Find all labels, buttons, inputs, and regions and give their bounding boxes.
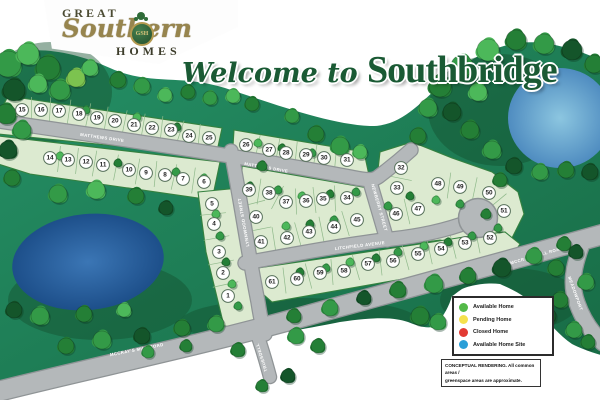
lot-marker[interactable]: 11 [97, 159, 110, 172]
lot-number: 18 [75, 111, 83, 118]
lot-marker[interactable]: 31 [341, 154, 354, 167]
lot-marker[interactable]: 6 [198, 176, 211, 189]
lot-marker[interactable]: 16 [35, 104, 48, 117]
lot-marker[interactable]: 13 [62, 154, 75, 167]
legend-status-dot [459, 303, 468, 312]
lot-number: 2 [221, 270, 225, 277]
lot-number: 56 [389, 258, 397, 265]
lot-number: 31 [343, 157, 351, 164]
lot-number: 38 [265, 190, 273, 197]
map-legend: Available HomePending HomeClosed HomeAva… [452, 296, 554, 356]
lot-marker[interactable]: 33 [391, 182, 404, 195]
lot-number: 25 [205, 135, 213, 142]
lot-number: 32 [397, 165, 405, 172]
lot-number: 8 [163, 172, 167, 179]
lot-marker[interactable]: 34 [341, 192, 354, 205]
lot-marker[interactable]: 28 [280, 147, 293, 160]
lot-number: 23 [167, 127, 175, 134]
lot-number: 40 [252, 214, 260, 221]
lot-number: 26 [242, 142, 250, 149]
lot-marker[interactable]: 18 [73, 108, 86, 121]
lot-number: 3 [217, 249, 221, 256]
legend-status-dot [459, 328, 468, 337]
legend-item: Available Home Site [459, 340, 547, 349]
lot-marker[interactable]: 37 [280, 196, 293, 209]
lot-number: 42 [283, 235, 291, 242]
page-title: Welcome to Southbridge [182, 48, 557, 92]
lot-number: 9 [144, 170, 148, 177]
lot-number: 41 [257, 239, 265, 246]
lot-number: 58 [340, 268, 348, 275]
lot-number: 11 [100, 162, 107, 169]
lot-marker[interactable]: 50 [483, 187, 496, 200]
lot-marker[interactable]: 57 [362, 258, 375, 271]
lot-number: 27 [265, 147, 273, 154]
lot-marker[interactable]: 38 [263, 187, 276, 200]
lot-marker[interactable]: 22 [146, 122, 159, 135]
lot-marker[interactable]: 42 [281, 232, 294, 245]
lot-number: 1 [226, 293, 230, 300]
lot-number: 4 [212, 221, 216, 228]
lot-number: 10 [125, 167, 133, 174]
lot-marker[interactable]: 46 [390, 208, 403, 221]
legend-status-dot [459, 315, 468, 324]
lot-number: 59 [316, 270, 324, 277]
lot-number: 53 [461, 240, 469, 247]
gsh-monogram-medallion: GSH [130, 22, 154, 46]
site-plan-page: MATTHEWS DRIVEMATTHEWS DRIVENEWBERRY STR… [0, 0, 600, 400]
lot-number: 36 [302, 198, 310, 205]
lot-number: 15 [18, 107, 26, 114]
lot-number: 45 [353, 217, 361, 224]
logo-text-homes: HOMES [116, 44, 181, 59]
lot-number: 46 [392, 211, 400, 218]
lot-marker[interactable]: 56 [387, 255, 400, 268]
lot-marker[interactable]: 35 [317, 193, 330, 206]
lot-marker[interactable]: 25 [203, 132, 216, 145]
note-line-2: greenspace areas are approximate. [445, 377, 537, 384]
lot-marker[interactable]: 12 [80, 156, 93, 169]
lot-number: 33 [393, 185, 401, 192]
lot-number: 54 [437, 246, 445, 253]
lot-number: 39 [245, 187, 253, 194]
lot-marker[interactable]: 51 [498, 205, 511, 218]
lot-marker[interactable]: 27 [263, 144, 276, 157]
lot-marker[interactable]: 9 [140, 167, 153, 180]
lot-marker[interactable]: 17 [53, 105, 66, 118]
lot-marker[interactable]: 43 [303, 226, 316, 239]
lot-number: 43 [305, 229, 313, 236]
legend-status-label: Available Home [473, 304, 514, 310]
lot-marker[interactable]: 19 [91, 112, 104, 125]
lot-marker[interactable]: 7 [177, 173, 190, 186]
lot-marker[interactable]: 40 [250, 211, 263, 224]
lot-marker[interactable]: 54 [435, 243, 448, 256]
lot-number: 14 [46, 155, 54, 162]
lot-marker[interactable]: 1 [222, 290, 235, 303]
lot-marker[interactable]: 45 [351, 214, 364, 227]
lot-number: 30 [320, 155, 328, 162]
lot-number: 20 [111, 118, 119, 125]
lot-number: 49 [456, 184, 464, 191]
lot-number: 6 [202, 179, 206, 186]
title-welcome: Welcome to [182, 58, 367, 89]
lot-marker[interactable]: 29 [300, 149, 313, 162]
lot-marker[interactable]: 15 [16, 104, 29, 117]
lot-number: 37 [282, 199, 290, 206]
lot-marker[interactable]: 32 [395, 162, 408, 175]
lot-marker[interactable]: 41 [255, 236, 268, 249]
legend-item: Pending Home [459, 315, 547, 324]
lot-marker[interactable]: 21 [128, 119, 141, 132]
lot-number: 5 [210, 201, 214, 208]
legend-status-label: Available Home Site [473, 342, 525, 348]
legend-status-label: Closed Home [473, 329, 508, 335]
lot-marker[interactable]: 23 [165, 124, 178, 137]
lot-marker[interactable]: 24 [183, 130, 196, 143]
lot-marker[interactable]: 26 [240, 139, 253, 152]
lot-marker[interactable]: 39 [243, 184, 256, 197]
lot-number: 29 [302, 152, 310, 159]
lot-number: 17 [55, 108, 63, 115]
lot-number: 61 [268, 279, 276, 286]
lot-number: 35 [319, 196, 327, 203]
lot-number: 34 [343, 195, 351, 202]
lot-number: 21 [130, 122, 138, 129]
lot-number: 28 [282, 150, 290, 157]
lot-number: 7 [181, 176, 185, 183]
lot-marker[interactable]: 14 [44, 152, 57, 165]
lot-marker[interactable]: 20 [109, 115, 122, 128]
lot-marker[interactable]: 58 [338, 265, 351, 278]
legend-item: Closed Home [459, 328, 547, 337]
lot-marker[interactable]: 36 [300, 195, 313, 208]
logo-text-southern: Southern [62, 14, 192, 43]
title-community-name: Southbridge [367, 49, 557, 91]
lot-number: 60 [293, 276, 301, 283]
lot-marker[interactable]: 53 [459, 237, 472, 250]
lot-marker[interactable]: 60 [291, 273, 304, 286]
lot-number: 13 [64, 157, 72, 164]
lot-marker[interactable]: 48 [432, 178, 445, 191]
lot-number: 51 [500, 208, 508, 215]
lot-marker[interactable]: 30 [318, 152, 331, 165]
conceptual-rendering-note: CONCEPTUAL RENDERING. All common areas /… [441, 359, 541, 387]
lot-number: 44 [330, 224, 338, 231]
legend-status-dot [459, 340, 468, 349]
lot-marker[interactable]: 10 [123, 164, 136, 177]
lot-marker[interactable]: 59 [314, 267, 327, 280]
lot-marker[interactable]: 47 [412, 203, 425, 216]
legend-status-label: Pending Home [473, 317, 512, 323]
lot-number: 12 [82, 159, 90, 166]
lot-number: 24 [185, 133, 193, 140]
lot-marker[interactable]: 49 [454, 181, 467, 194]
lot-number: 57 [364, 261, 372, 268]
lot-marker[interactable]: 3 [213, 246, 226, 259]
lot-number: 22 [148, 125, 156, 132]
lot-number: 19 [93, 115, 101, 122]
lot-marker[interactable]: 52 [484, 232, 497, 245]
legend-item: Available Home [459, 303, 547, 312]
lot-number: 55 [414, 251, 422, 258]
lot-marker[interactable]: 8 [159, 169, 172, 182]
note-line-1: CONCEPTUAL RENDERING. All common areas / [445, 362, 537, 377]
lot-number: 16 [37, 107, 45, 114]
lot-number: 48 [434, 181, 442, 188]
tree-sprig-icon [137, 12, 145, 20]
lot-marker[interactable]: 5 [206, 198, 219, 211]
lot-number: 52 [486, 235, 494, 242]
lot-marker[interactable]: 44 [328, 221, 341, 234]
lot-marker[interactable]: 4 [208, 218, 221, 231]
lot-number: 47 [414, 206, 422, 213]
lot-marker[interactable]: 61 [266, 276, 279, 289]
lot-marker[interactable]: 55 [412, 248, 425, 261]
lot-marker[interactable]: 2 [217, 267, 230, 280]
lot-number: 50 [485, 190, 493, 197]
